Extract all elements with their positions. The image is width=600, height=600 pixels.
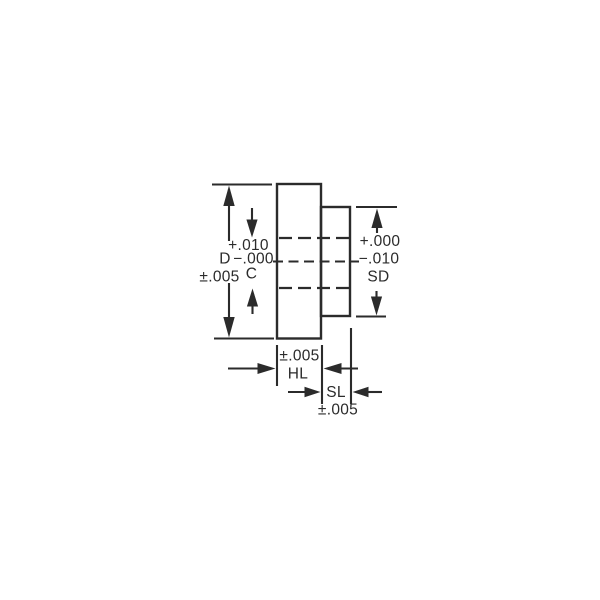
arrowhead-down-icon [223, 317, 234, 338]
dim-bore: +.010 −.000 C [228, 208, 274, 314]
label-sl-tolerance: ±.005 [318, 402, 358, 419]
label-hl: HL [288, 366, 308, 383]
arrowhead-right-icon [258, 363, 276, 374]
label-hl-tolerance: ±.005 [279, 348, 319, 365]
drawing-canvas: D ±.005 +.010 −.000 C +.000 −.010 SD [0, 0, 600, 600]
hub-outline [277, 184, 321, 339]
label-sd-tol-minus: −.010 [359, 251, 400, 268]
label-c: C [246, 266, 258, 283]
arrowhead-down-icon [246, 220, 257, 238]
arrowhead-left-icon [353, 387, 369, 397]
label-sd: SD [367, 269, 389, 286]
arrowhead-up-icon [371, 209, 382, 229]
label-d-tolerance: ±.005 [199, 269, 239, 286]
label-sl: SL [326, 384, 346, 401]
arrowhead-down-icon [371, 297, 382, 316]
dimension-drawing: D ±.005 +.010 −.000 C +.000 −.010 SD [0, 0, 600, 600]
dim-shaft-diameter: +.000 −.010 SD [356, 207, 400, 317]
arrowhead-right-icon [305, 387, 321, 397]
arrowhead-up-icon [223, 186, 234, 207]
arrowhead-up-icon [247, 289, 258, 307]
arrowhead-left-icon [324, 363, 342, 374]
label-sd-tol-plus: +.000 [360, 233, 401, 250]
